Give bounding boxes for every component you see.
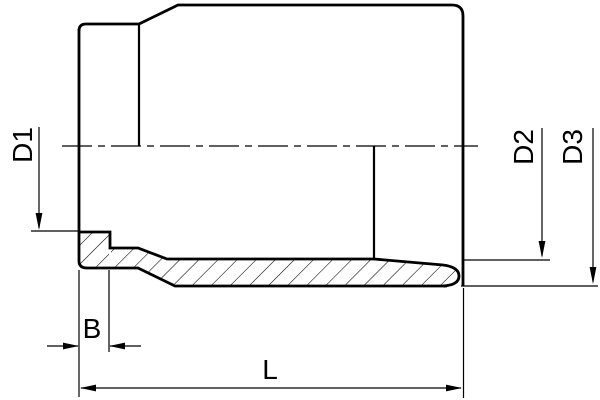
dimension-d1 (31, 127, 79, 231)
d2-arrow-icon (539, 241, 546, 258)
b-arrow-right-icon (109, 343, 125, 350)
d3-arrow-icon (590, 267, 597, 284)
dim-label-d3: D3 (559, 117, 587, 177)
dim-label-b: B (62, 315, 122, 343)
dim-label-l: L (240, 356, 300, 384)
drawing-sheet: D1 D2 D3 B L (0, 0, 600, 400)
l-arrow-left-icon (80, 385, 96, 392)
dim-label-d2: D2 (510, 117, 538, 177)
l-arrow-right-icon (446, 385, 462, 392)
b-arrow-left-icon (63, 343, 79, 350)
dim-label-d1: D1 (9, 115, 37, 175)
d1-arrow-icon (36, 213, 43, 230)
